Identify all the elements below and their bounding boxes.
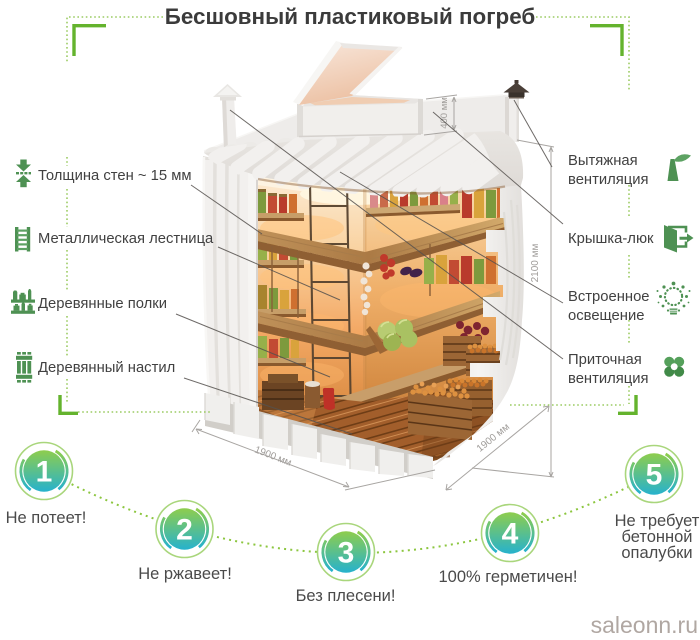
svg-text:400 мм: 400 мм [439, 97, 450, 129]
svg-text:Крышка-люк: Крышка-люк [568, 231, 654, 247]
svg-text:Толщина стен ~ 15 мм: Толщина стен ~ 15 мм [38, 168, 192, 184]
svg-text:освещение: освещение [568, 308, 644, 324]
svg-text:Не потеет!: Не потеет! [6, 509, 87, 527]
svg-text:Приточная: Приточная [568, 352, 642, 368]
svg-text:Встроенное: Встроенное [568, 289, 650, 305]
svg-text:saleonn.ru: saleonn.ru [591, 612, 698, 638]
svg-text:Без плесени!: Без плесени! [296, 587, 396, 605]
svg-text:вентиляция: вентиляция [568, 371, 649, 387]
svg-text:Деревянный настил: Деревянный настил [38, 360, 175, 376]
svg-text:1: 1 [36, 456, 53, 489]
svg-text:Бесшовный пластиковый погреб: Бесшовный пластиковый погреб [165, 4, 535, 29]
svg-text:100% герметичен!: 100% герметичен! [438, 568, 577, 586]
svg-text:Вытяжная: Вытяжная [568, 153, 638, 169]
svg-text:Не ржавеет!: Не ржавеет! [138, 565, 232, 583]
svg-text:2100 мм: 2100 мм [530, 243, 541, 282]
svg-text:5: 5 [646, 459, 663, 492]
svg-text:вентиляция: вентиляция [568, 172, 649, 188]
svg-text:Деревянные полки: Деревянные полки [38, 296, 167, 312]
svg-text:опалубки: опалубки [621, 544, 692, 562]
svg-text:3: 3 [338, 537, 355, 570]
svg-text:4: 4 [502, 518, 519, 551]
svg-text:Металлическая лестница: Металлическая лестница [38, 231, 214, 247]
svg-text:2: 2 [176, 514, 193, 547]
